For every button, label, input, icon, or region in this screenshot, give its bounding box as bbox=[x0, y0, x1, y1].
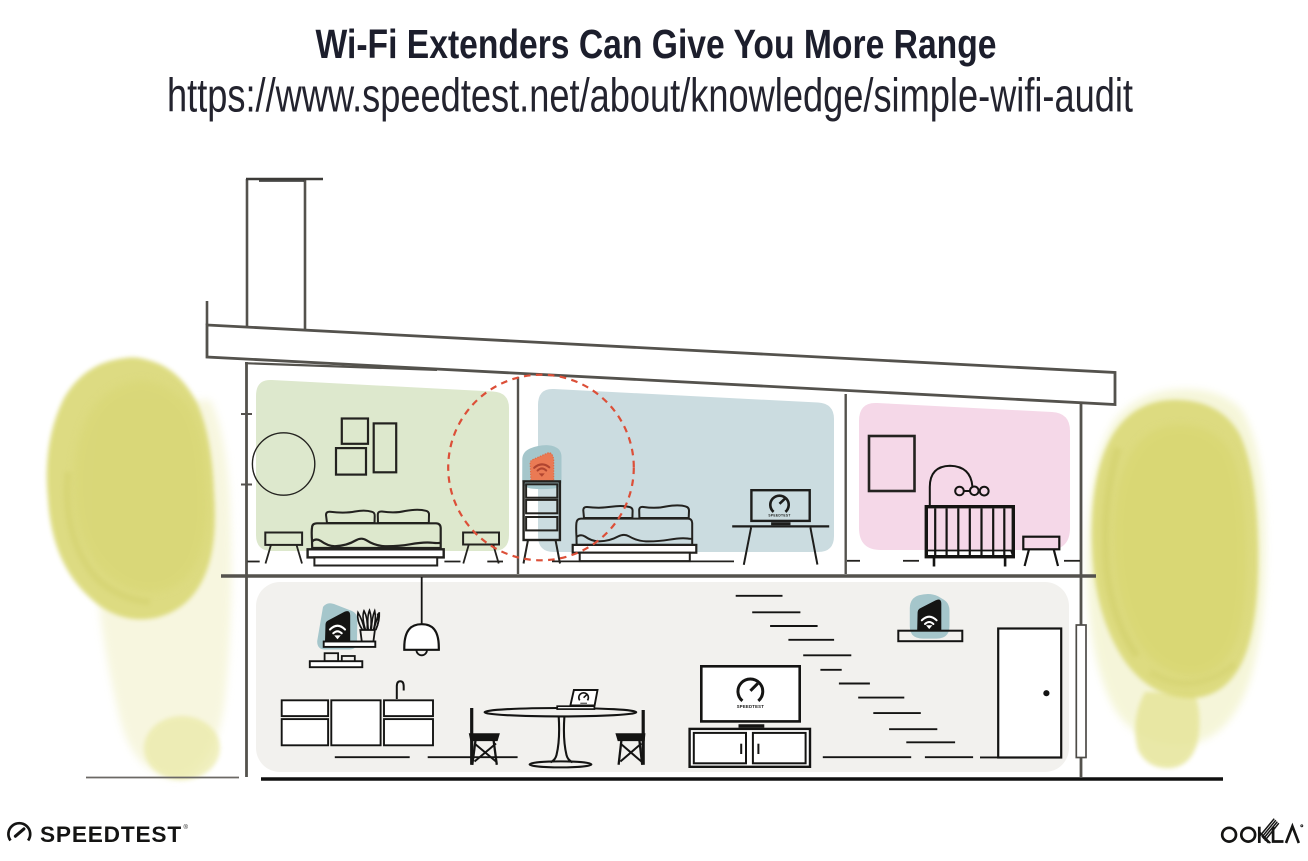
svg-text:®: ® bbox=[184, 824, 189, 831]
svg-text:Wi-Fi Extenders Can Give You M: Wi-Fi Extenders Can Give You More Range bbox=[316, 21, 997, 67]
svg-text:SPEEDTEST: SPEEDTEST bbox=[737, 704, 765, 709]
svg-text:https://www.speedtest.net/abou: https://www.speedtest.net/about/knowledg… bbox=[167, 69, 1133, 122]
svg-text:SPEEDTEST: SPEEDTEST bbox=[40, 822, 182, 847]
svg-text:SPEEDTEST: SPEEDTEST bbox=[768, 514, 790, 518]
